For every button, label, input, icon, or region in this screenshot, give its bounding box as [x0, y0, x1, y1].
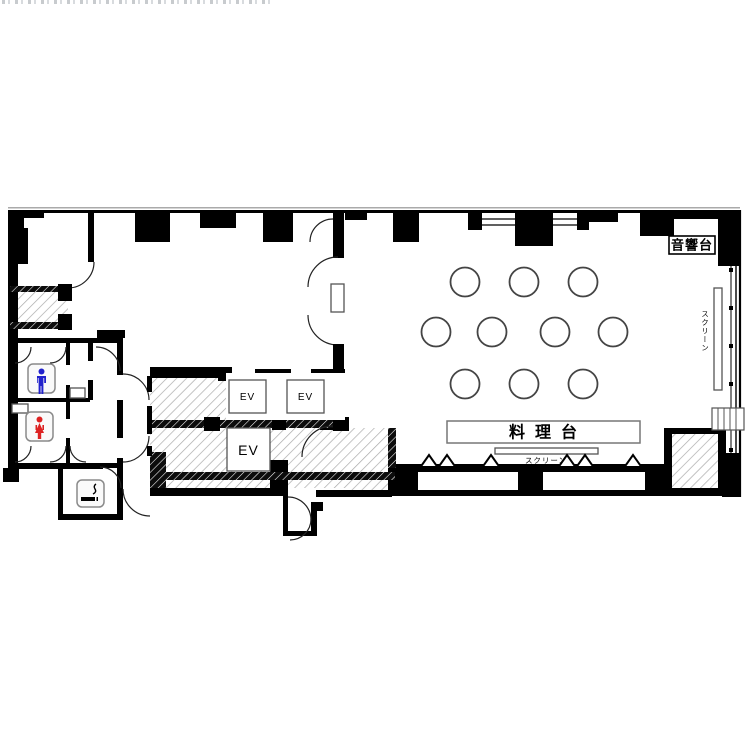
entrance-vestibule — [283, 492, 323, 540]
door-arc — [123, 374, 149, 400]
door-arc — [290, 519, 311, 540]
round-tables — [422, 268, 628, 399]
round-table — [451, 268, 480, 297]
floor-plan-drawing: EV EV EV — [0, 0, 750, 750]
round-table — [510, 370, 539, 399]
female-restroom-icon — [26, 412, 53, 441]
elevator-3-label: EV — [238, 442, 259, 458]
round-table — [541, 318, 570, 347]
round-table — [599, 318, 628, 347]
screen-bottom — [495, 448, 598, 454]
elevator-1-label: EV — [240, 392, 255, 403]
audio-desk-label: 音響台 — [671, 238, 713, 253]
elevator-2-label: EV — [298, 392, 313, 403]
cooking-counter-label: 料理台 — [509, 423, 587, 442]
sink-counter — [70, 388, 85, 398]
screen-side-label: スクリーン — [701, 310, 710, 353]
round-table — [569, 268, 598, 297]
door-arc — [308, 315, 338, 345]
door-arc — [308, 257, 338, 287]
door-arc — [288, 497, 311, 520]
smoking-area-icon — [77, 480, 104, 507]
smoking-room — [58, 463, 150, 520]
male-restroom-icon — [28, 364, 55, 394]
restrooms — [3, 338, 149, 482]
round-table — [451, 370, 480, 399]
round-table — [422, 318, 451, 347]
round-table — [478, 318, 507, 347]
door-arc — [70, 446, 86, 462]
door-arc — [123, 436, 149, 462]
ladder-symbol — [712, 408, 744, 430]
screen-side — [714, 288, 722, 390]
door-arc — [310, 219, 333, 242]
sink-counter — [12, 404, 28, 413]
door-arc — [50, 446, 66, 462]
floor-plan-page: EV EV EV — [0, 0, 750, 750]
door-arc — [50, 347, 66, 363]
round-table — [569, 370, 598, 399]
shaft-room-floor — [672, 434, 718, 488]
door-arc — [123, 489, 150, 516]
console-stand — [331, 284, 344, 312]
door-arc — [96, 347, 120, 371]
round-table — [510, 268, 539, 297]
